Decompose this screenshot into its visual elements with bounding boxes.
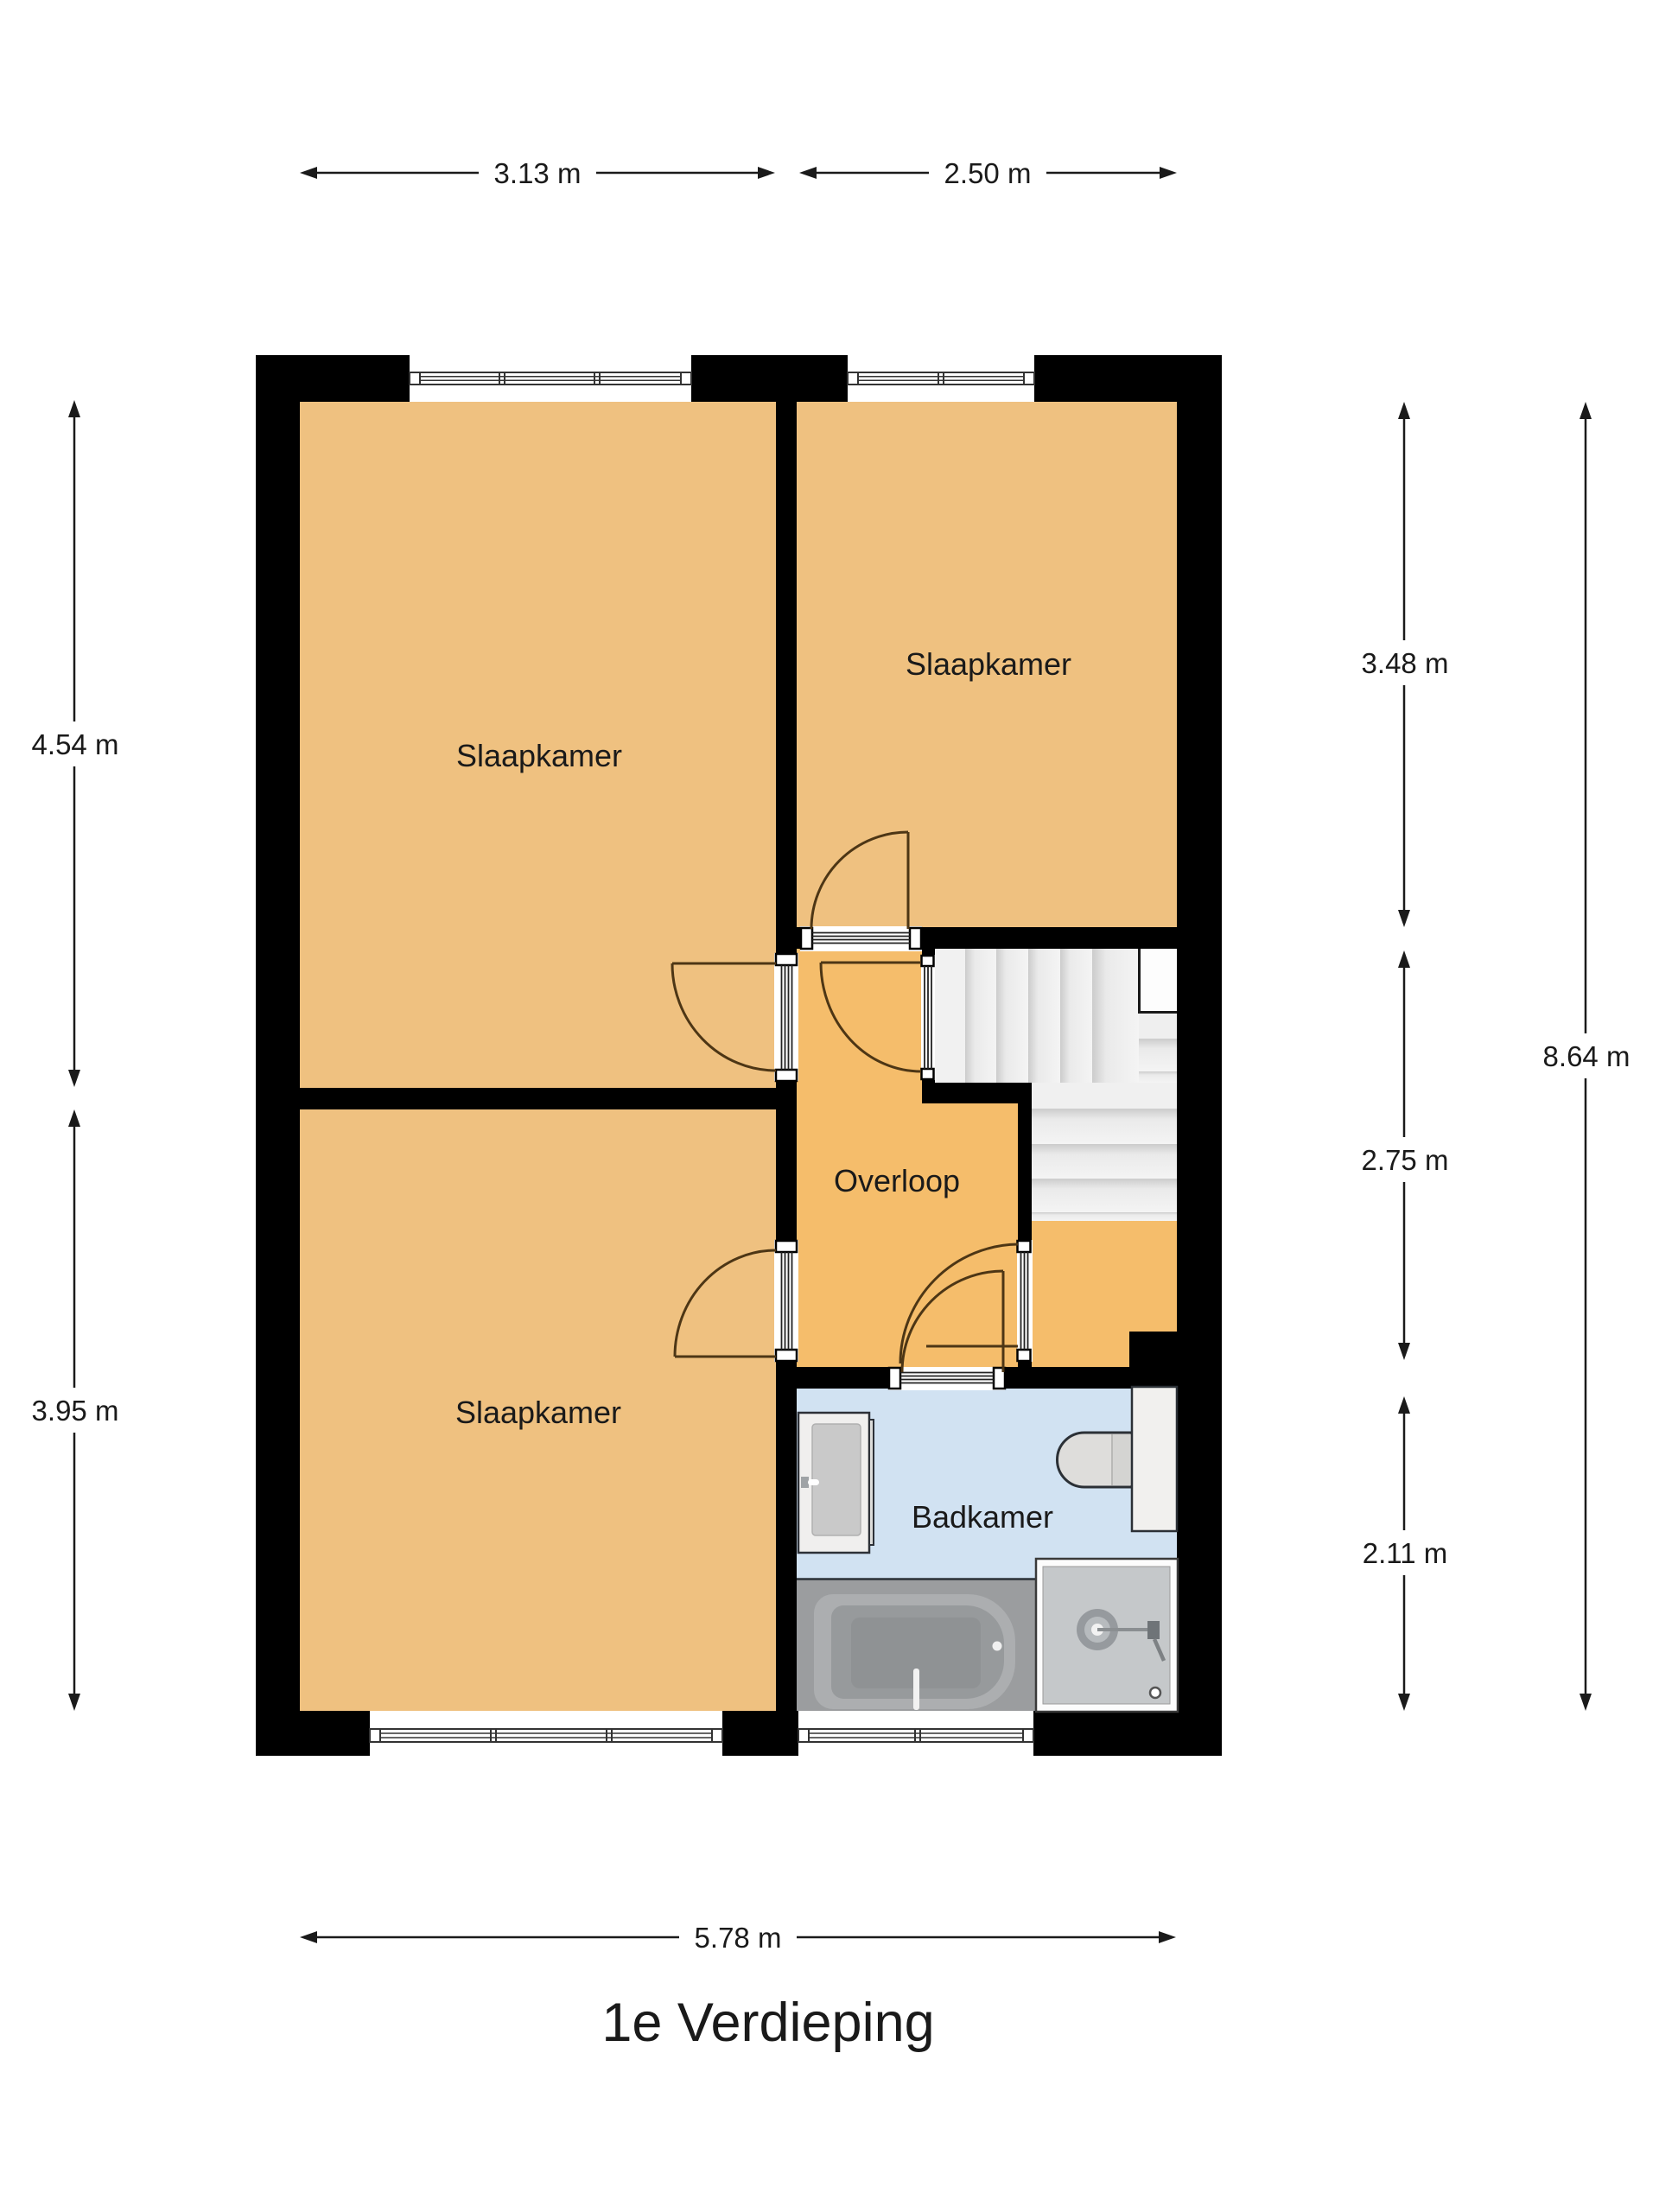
svg-text:Slaapkamer: Slaapkamer (455, 1395, 621, 1430)
svg-text:Slaapkamer: Slaapkamer (906, 646, 1071, 682)
svg-text:Slaapkamer: Slaapkamer (456, 738, 622, 773)
svg-text:2.75 m: 2.75 m (1362, 1144, 1449, 1176)
svg-text:3.13 m: 3.13 m (494, 157, 582, 189)
svg-text:1e Verdieping: 1e Verdieping (601, 1993, 934, 2053)
svg-text:5.78 m: 5.78 m (695, 1922, 782, 1954)
svg-text:3.48 m: 3.48 m (1362, 647, 1449, 679)
svg-text:Overloop: Overloop (834, 1163, 960, 1198)
svg-text:Badkamer: Badkamer (912, 1499, 1053, 1535)
svg-text:2.11 m: 2.11 m (1363, 1537, 1447, 1569)
svg-text:8.64 m: 8.64 m (1543, 1040, 1630, 1072)
svg-text:3.95 m: 3.95 m (32, 1395, 119, 1427)
svg-text:4.54 m: 4.54 m (32, 728, 119, 760)
svg-text:2.50 m: 2.50 m (944, 157, 1032, 189)
